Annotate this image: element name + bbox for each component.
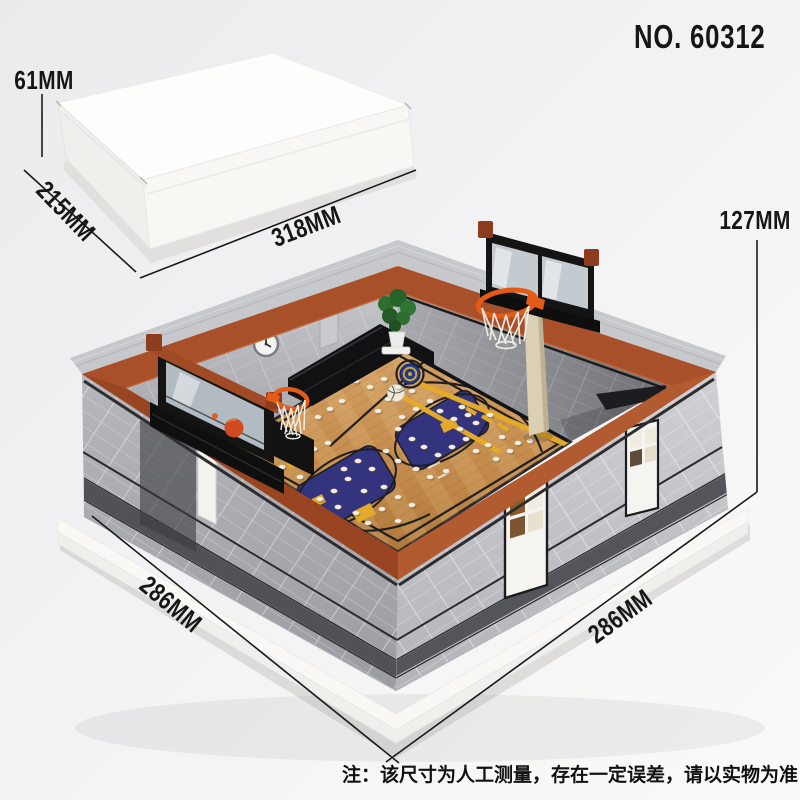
ball-in-rack — [225, 419, 244, 438]
box-height-label: 61MM — [14, 67, 73, 93]
arena-model-photo — [58, 221, 765, 763]
rust-post — [146, 334, 162, 351]
packaging-box-photo — [56, 53, 417, 263]
product-dimension-photo: NO. 60312 61MM 215MM 318MM 127MM 286MM 2… — [0, 0, 800, 800]
measurement-note: 注：该尺寸为人工测量，存在一定误差，请以实物为准！ — [342, 766, 800, 785]
rust-post — [478, 221, 493, 238]
photo-scene — [0, 0, 800, 800]
rust-post — [584, 249, 599, 266]
center-court-logo — [397, 361, 424, 388]
model-height-label: 127MM — [719, 207, 790, 233]
product-number: NO. 60312 — [634, 20, 766, 53]
